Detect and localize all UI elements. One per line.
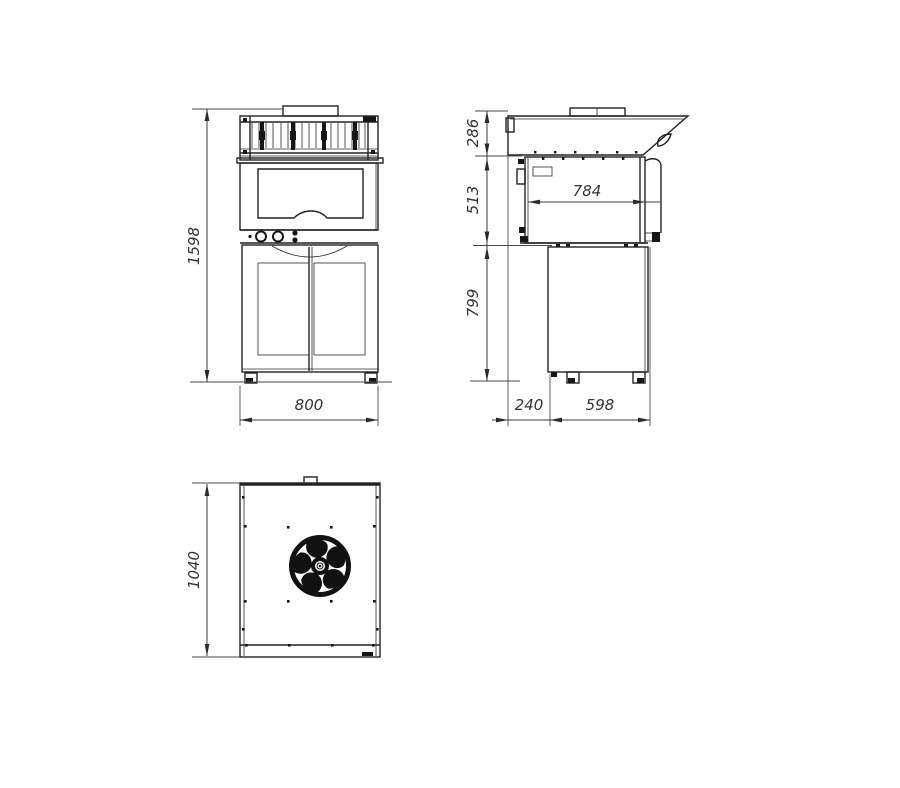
grill-section [240, 116, 378, 160]
dim-label-overall-height: 1598 [185, 227, 203, 265]
dim-label-oven-body-height: 513 [464, 186, 482, 215]
hood-vent [570, 108, 625, 116]
screw-dots [242, 496, 379, 647]
dim-label-top-view-depth: 1040 [185, 551, 203, 589]
control-knob [273, 232, 283, 242]
oven-window [258, 169, 363, 218]
control-knob [256, 232, 266, 242]
dim-label-hood-height: 286 [464, 119, 482, 148]
grill-pilot-box [363, 117, 376, 122]
door-handle-knob [652, 232, 660, 242]
switch-button [292, 237, 297, 242]
fan-icon [290, 538, 349, 597]
oven-dimension-drawing: 1598 800 286 513 799 784 240 598 1040 [0, 0, 900, 788]
rear-connection-box [517, 169, 525, 184]
switch-button [292, 230, 297, 235]
control-panel [240, 230, 378, 243]
cabinet-door-right [314, 263, 365, 355]
dim-label-oven-body-depth: 784 [573, 182, 602, 200]
indicator-lamp [248, 235, 251, 238]
front-view [237, 106, 383, 383]
dim-label-overall-width: 800 [295, 396, 324, 414]
base-cabinet-front [242, 245, 378, 372]
feet-front [245, 373, 377, 383]
dim-label-base-cabinet-depth: 598 [586, 396, 615, 414]
front-vent [283, 106, 338, 116]
oven-door-edge [645, 159, 661, 233]
top-view [240, 477, 380, 657]
grill-burner-bars [259, 122, 358, 150]
dim-label-rear-offset-depth: 240 [515, 396, 544, 414]
hood-rivets [534, 151, 637, 153]
base-cabinet-side [548, 247, 648, 383]
rating-label [533, 167, 552, 176]
hood-rear-tab [506, 118, 514, 132]
dim-label-base-cabinet-height: 799 [464, 289, 482, 318]
technical-drawing-page: 1598 800 286 513 799 784 240 598 1040 [0, 0, 900, 788]
door-hinge [645, 233, 653, 241]
cabinet-door-left [258, 263, 309, 355]
hood [506, 108, 688, 155]
grill-slats [252, 123, 365, 148]
oven-door [240, 163, 378, 230]
